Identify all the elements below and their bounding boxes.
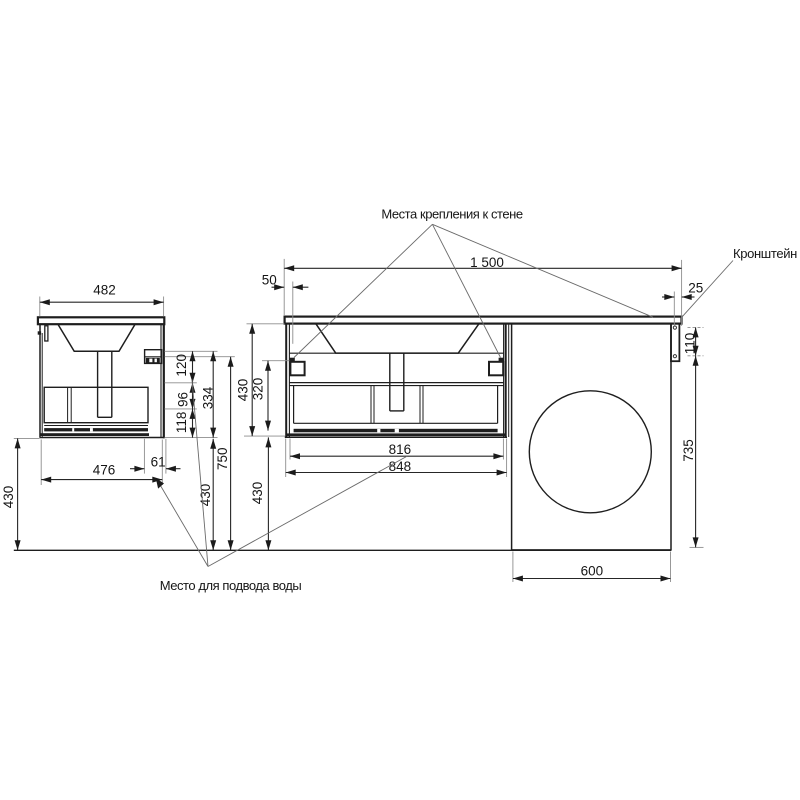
svg-text:320: 320	[250, 378, 265, 401]
svg-text:735: 735	[681, 439, 696, 462]
svg-text:118: 118	[174, 412, 189, 434]
svg-text:96: 96	[176, 392, 191, 407]
svg-text:430: 430	[1, 486, 16, 509]
svg-text:50: 50	[262, 273, 277, 288]
svg-text:1 500: 1 500	[470, 255, 504, 270]
svg-text:430: 430	[236, 379, 251, 402]
svg-text:476: 476	[93, 462, 116, 477]
svg-text:848: 848	[389, 459, 412, 474]
svg-text:600: 600	[581, 563, 604, 578]
svg-text:750: 750	[215, 448, 230, 471]
svg-text:430: 430	[198, 484, 213, 507]
svg-text:120: 120	[174, 354, 189, 377]
svg-text:25: 25	[688, 280, 703, 295]
svg-text:110: 110	[683, 333, 698, 355]
svg-text:Место для подвода воды: Место для подвода воды	[160, 578, 302, 593]
svg-text:816: 816	[389, 442, 412, 457]
svg-text:430: 430	[250, 482, 265, 505]
svg-text:61: 61	[151, 454, 166, 469]
svg-text:Места крепления к стене: Места крепления к стене	[381, 207, 523, 222]
svg-text:Кронштейн: Кронштейн	[733, 246, 797, 261]
svg-text:482: 482	[93, 283, 116, 298]
svg-text:334: 334	[201, 386, 216, 409]
